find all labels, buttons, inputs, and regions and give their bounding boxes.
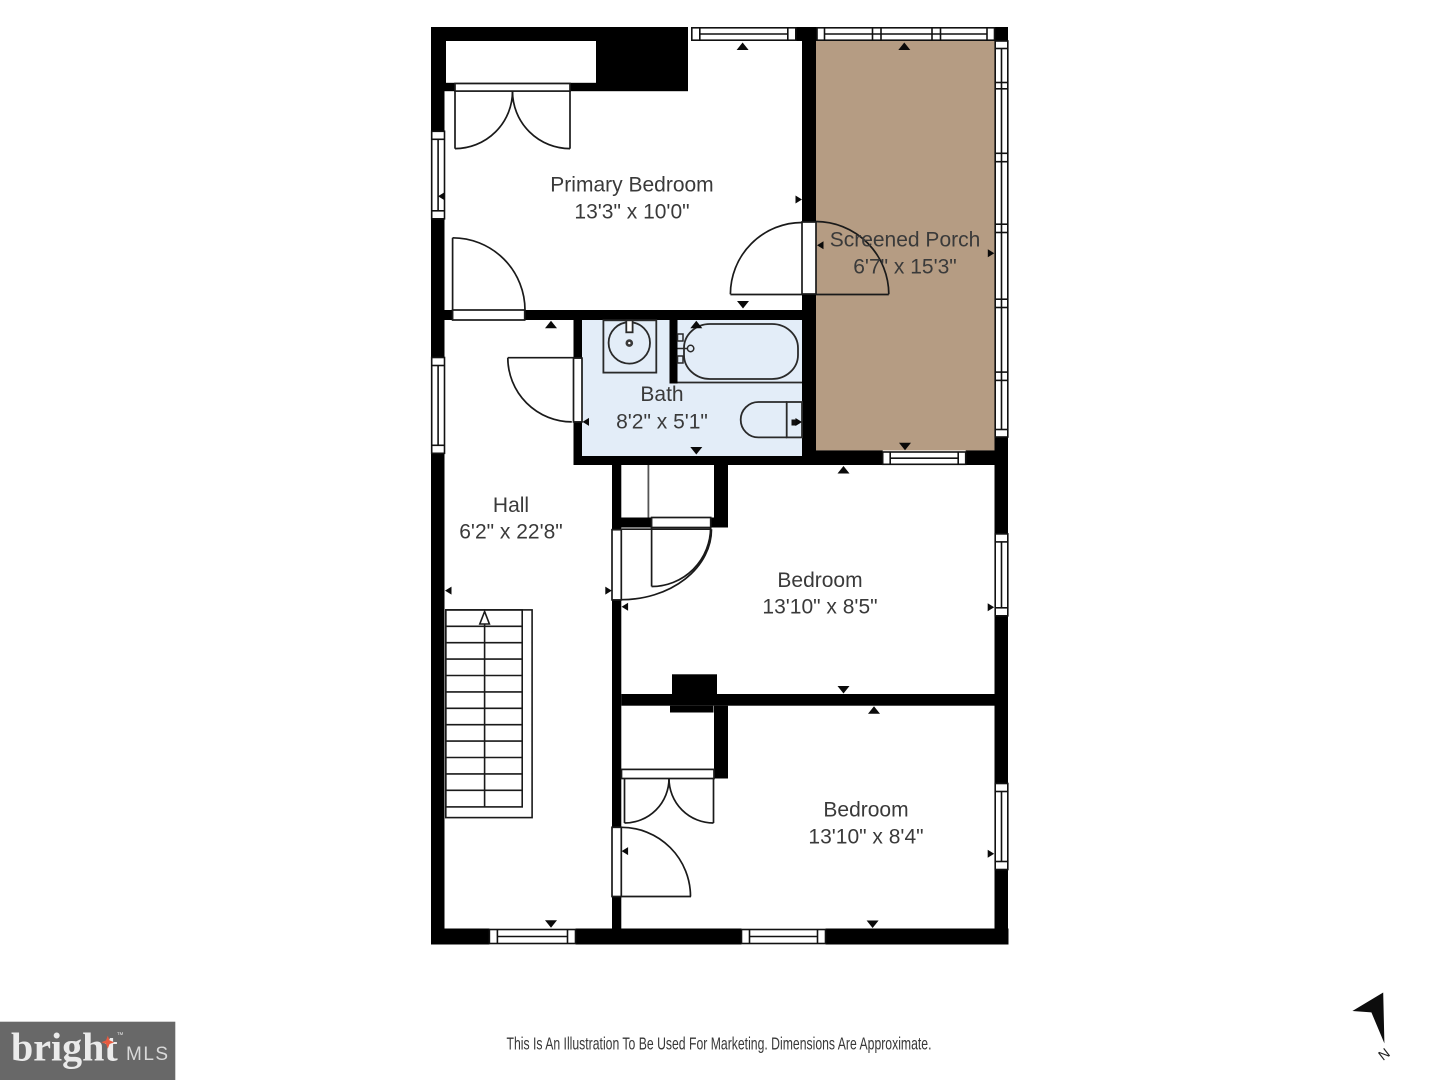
svg-text:Bath: Bath (640, 383, 683, 406)
svg-text:13'3" x 10'0": 13'3" x 10'0" (574, 201, 689, 224)
svg-text:6'7" x 15'3": 6'7" x 15'3" (853, 256, 957, 279)
svg-text:bright: bright (11, 1025, 118, 1070)
svg-text:Primary Bedroom: Primary Bedroom (550, 174, 713, 197)
svg-text:Bedroom: Bedroom (777, 569, 862, 592)
svg-text:13'10" x 8'5": 13'10" x 8'5" (762, 596, 877, 619)
svg-text:This Is An Illustration To Be: This Is An Illustration To Be Used For M… (507, 1034, 932, 1054)
svg-text:13'10" x 8'4": 13'10" x 8'4" (808, 826, 923, 849)
svg-text:6'2" x 22'8": 6'2" x 22'8" (459, 521, 563, 544)
svg-text:™: ™ (117, 1032, 124, 1039)
svg-text:Hall: Hall (493, 494, 529, 517)
svg-text:Screened Porch: Screened Porch (830, 229, 981, 252)
svg-text:8'2" x 5'1": 8'2" x 5'1" (616, 411, 708, 434)
svg-text:Bedroom: Bedroom (823, 799, 908, 822)
svg-text:MLS: MLS (126, 1044, 170, 1065)
